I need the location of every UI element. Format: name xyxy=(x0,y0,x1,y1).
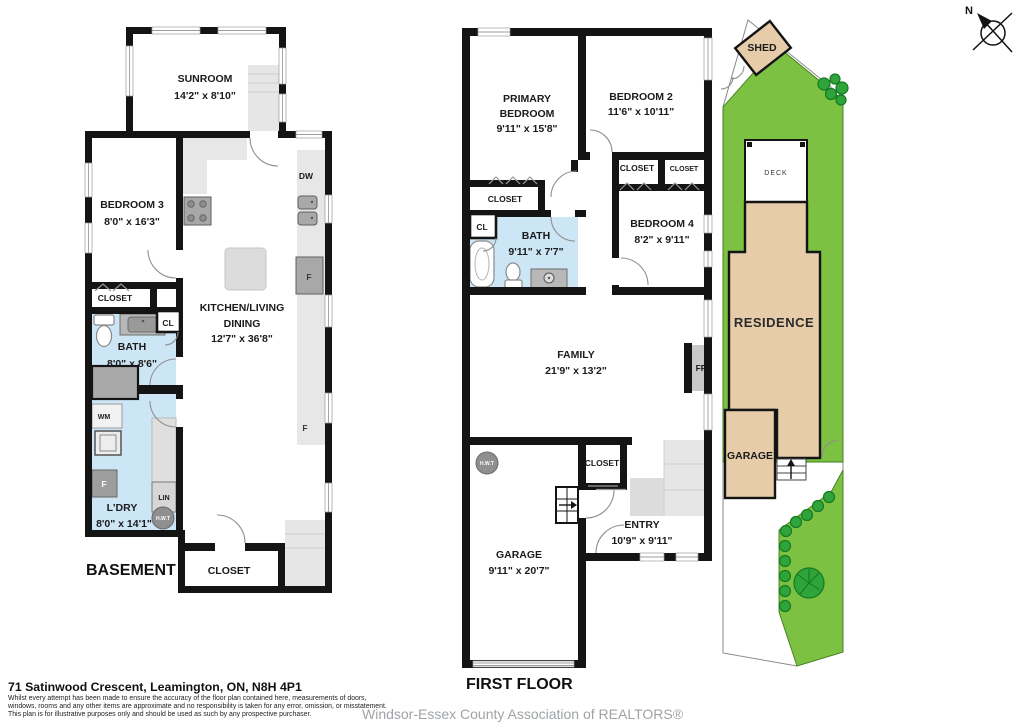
kitchen-island xyxy=(225,248,266,290)
ff-garage-label: GARAGE xyxy=(496,549,542,561)
basement-stairs xyxy=(285,520,325,586)
floor-plan-drawing: SUNROOM 14'2" x 8'10" BEDROOM 3 8'0" x 1… xyxy=(0,0,1024,723)
stove-icon xyxy=(184,197,211,225)
deck-label: DECK xyxy=(764,170,787,177)
disclaimer-line3: This plan is for illustrative purposes o… xyxy=(8,711,311,718)
ff-hwt-label: H.W.T xyxy=(480,461,494,467)
big-tree-icon xyxy=(794,568,824,598)
basement-bedroom3-dims: 8'0" x 16'3" xyxy=(104,216,160,228)
garage-steps-icon xyxy=(556,487,578,523)
linen-label: LIN xyxy=(158,495,169,502)
first-floor-plan: PRIMARY BEDROOM 9'11" x 15'8" BEDROOM 2 … xyxy=(462,28,712,693)
sunroom-stairs xyxy=(248,65,279,131)
basement-title: BASEMENT xyxy=(86,562,176,579)
ff-cl-label: CL xyxy=(476,222,487,232)
basement-plan: SUNROOM 14'2" x 8'10" BEDROOM 3 8'0" x 1… xyxy=(85,27,332,593)
washer-label: WM xyxy=(98,414,111,421)
site-plan: SHED DECK RESIDENCE GARAGE xyxy=(721,20,848,666)
basement-sunroom-dims: 14'2" x 8'10" xyxy=(174,90,236,102)
basement-rear-closet-label: CLOSET xyxy=(208,565,251,577)
kitchen-label-line2: DINING xyxy=(224,318,261,330)
residence-label: RESIDENCE xyxy=(734,315,814,330)
entry-dims: 10'9" x 9'11" xyxy=(611,535,672,547)
compass: N xyxy=(965,5,1012,52)
closet-a-label: CLOSET xyxy=(620,163,655,173)
footer: 71 Satinwood Crescent, Leamington, ON, N… xyxy=(7,680,684,722)
closet-b-label: CLOSET xyxy=(670,166,699,173)
fireplace-label: FP xyxy=(696,363,707,373)
primary-label-line2: BEDROOM xyxy=(500,108,555,120)
kitchen-label-line1: KITCHEN/LIVING xyxy=(200,302,285,314)
site-steps xyxy=(777,459,806,480)
ff-vanity-icon xyxy=(531,269,567,288)
entry-label: ENTRY xyxy=(624,519,659,531)
primary-closet-label: CLOSET xyxy=(488,194,523,204)
fridge-label: F xyxy=(306,272,311,282)
laundry-counter xyxy=(152,418,176,482)
first-floor-title: FIRST FLOOR xyxy=(466,676,573,693)
basement-closet-label: CLOSET xyxy=(98,293,133,303)
bedroom2-label: BEDROOM 2 xyxy=(609,91,673,103)
entry-stairs-lower xyxy=(630,478,664,516)
family-dims: 21'9" x 13'2" xyxy=(545,365,607,377)
basement-cl-label: CL xyxy=(162,318,173,328)
basement-bedroom3-label: BEDROOM 3 xyxy=(100,199,164,211)
basement-bath-label: BATH xyxy=(118,341,146,353)
floor-plan-page: SUNROOM 14'2" x 8'10" BEDROOM 3 8'0" x 1… xyxy=(0,0,1024,723)
primary-dims: 9'11" x 15'8" xyxy=(496,123,557,135)
primary-label-line1: PRIMARY xyxy=(503,93,551,105)
basement-sunroom-label: SUNROOM xyxy=(178,73,233,85)
site-garage-label: GARAGE xyxy=(727,450,773,462)
basement-bath-dims: 8'0" x 8'6" xyxy=(107,358,157,370)
laundry-sink-icon xyxy=(95,431,121,455)
disclaimer-line1: Whilst every attempt has been made to en… xyxy=(8,695,367,702)
realtor-watermark: Windsor-Essex County Association of REAL… xyxy=(362,706,684,722)
property-address: 71 Satinwood Crescent, Leamington, ON, N… xyxy=(8,680,302,694)
ff-garage-dims: 9'11" x 20'7" xyxy=(488,565,549,577)
ff-bath-dims: 9'11" x 7'7" xyxy=(508,246,563,258)
basement-laundry-label: L'DRY xyxy=(107,502,138,514)
ff-tub-icon xyxy=(470,241,494,287)
freezer-label: F xyxy=(101,479,106,489)
garage-door xyxy=(473,661,574,667)
freezer2-label: F xyxy=(302,423,307,433)
ff-bath-label: BATH xyxy=(522,230,550,242)
shed-label: SHED xyxy=(747,42,777,54)
bedroom2-dims: 11'6" x 10'11" xyxy=(608,106,674,118)
basement-hwt-label: H.W.T xyxy=(156,516,170,522)
basement-laundry-dims: 8'0" x 14'1" xyxy=(96,518,152,530)
kitchen-dims: 12'7" x 36'8" xyxy=(211,333,273,345)
bedroom4-label: BEDROOM 4 xyxy=(630,218,694,230)
entry-closet-label: CLOSET xyxy=(585,458,620,468)
entry-stairs xyxy=(664,440,704,516)
disclaimer-line2: windows, rooms and any other items are a… xyxy=(7,703,387,710)
bedroom4-dims: 8'2" x 9'11" xyxy=(634,234,689,246)
dishwasher-label: DW xyxy=(299,171,314,181)
shower-icon xyxy=(92,366,138,399)
compass-north-label: N xyxy=(965,5,973,17)
family-label: FAMILY xyxy=(557,349,595,361)
